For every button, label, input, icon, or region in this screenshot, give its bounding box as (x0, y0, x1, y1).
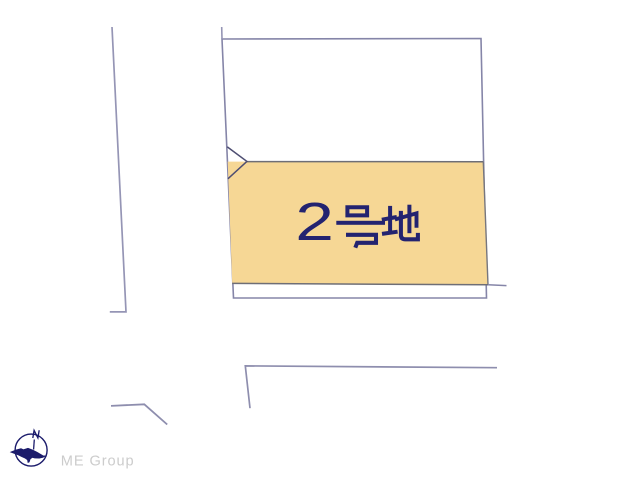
svg-text:ME Group: ME Group (61, 454, 135, 470)
svg-text:2: 2 (295, 192, 334, 252)
